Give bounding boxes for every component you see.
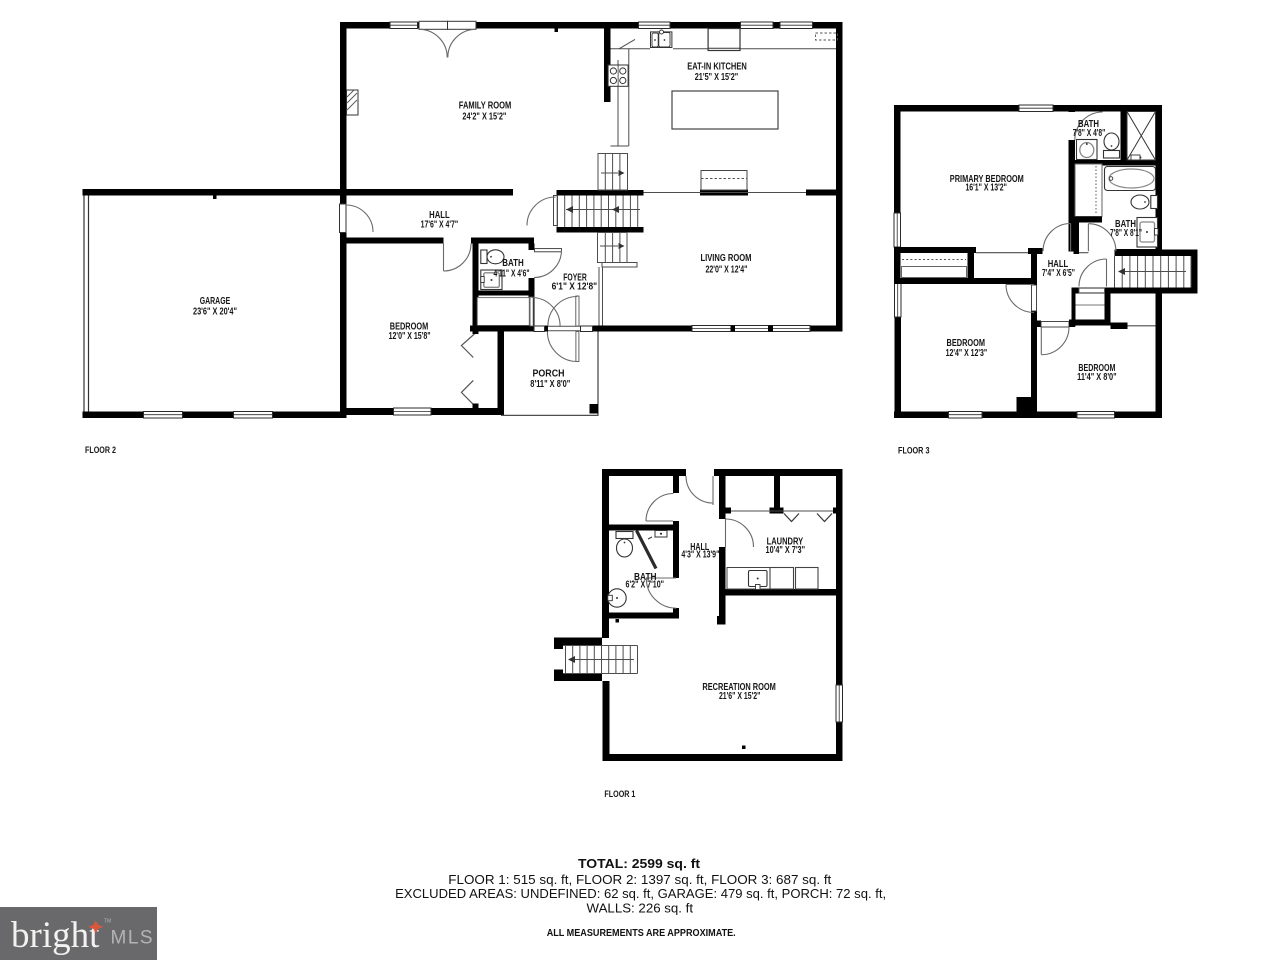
svg-text:FLOOR 1: FLOOR 1 bbox=[604, 789, 635, 800]
svg-text:24'2" X 15'2": 24'2" X 15'2" bbox=[462, 112, 506, 123]
svg-text:6'2" X 7'10": 6'2" X 7'10" bbox=[626, 580, 665, 591]
svg-text:TOTAL: 2599 sq. ft: TOTAL: 2599 sq. ft bbox=[578, 856, 701, 871]
svg-text:12'4" X 12'3": 12'4" X 12'3" bbox=[946, 348, 988, 359]
svg-text:6'1" X 12'8": 6'1" X 12'8" bbox=[552, 282, 598, 293]
svg-text:7'8" X 8'1": 7'8" X 8'1" bbox=[1110, 228, 1142, 239]
svg-text:EAT-IN KITCHEN: EAT-IN KITCHEN bbox=[687, 62, 747, 73]
svg-text:12'0" X 15'8": 12'0" X 15'8" bbox=[389, 331, 431, 342]
svg-text:17'6" X 4'7": 17'6" X 4'7" bbox=[421, 219, 459, 230]
svg-text:TM: TM bbox=[104, 919, 111, 925]
svg-text:11'4" X 8'0": 11'4" X 8'0" bbox=[1077, 372, 1117, 383]
svg-text:23'6" X 20'4": 23'6" X 20'4" bbox=[193, 307, 237, 318]
svg-text:GARAGE: GARAGE bbox=[200, 296, 231, 307]
svg-text:8'11" X 8'0": 8'11" X 8'0" bbox=[530, 379, 570, 390]
svg-text:ALL MEASUREMENTS ARE APPROXIMA: ALL MEASUREMENTS ARE APPROXIMATE. bbox=[547, 928, 736, 939]
svg-text:FLOOR 2: FLOOR 2 bbox=[85, 445, 116, 456]
svg-text:PORCH: PORCH bbox=[533, 368, 565, 379]
svg-text:7'4" X 6'5": 7'4" X 6'5" bbox=[1042, 268, 1075, 279]
svg-text:EXCLUDED AREAS: UNDEFINED: 62: EXCLUDED AREAS: UNDEFINED: 62 sq. ft, GA… bbox=[395, 886, 886, 901]
svg-text:bright: bright bbox=[11, 915, 100, 956]
svg-text:FAMILY ROOM: FAMILY ROOM bbox=[459, 101, 512, 112]
svg-text:7'8" X 4'8": 7'8" X 4'8" bbox=[1073, 128, 1106, 139]
svg-text:MLS: MLS bbox=[111, 928, 155, 949]
svg-text:10'4" X 7'3": 10'4" X 7'3" bbox=[766, 545, 806, 556]
svg-text:FLOOR 3: FLOOR 3 bbox=[898, 445, 930, 456]
svg-text:LIVING ROOM: LIVING ROOM bbox=[701, 253, 752, 264]
svg-text:BATH: BATH bbox=[502, 258, 524, 269]
svg-text:4'11" X 4'6": 4'11" X 4'6" bbox=[494, 269, 530, 280]
svg-text:21'6" X 15'2": 21'6" X 15'2" bbox=[719, 691, 761, 702]
svg-text:16'1" X 13'2": 16'1" X 13'2" bbox=[965, 182, 1007, 193]
svg-text:WALLS: 226 sq. ft: WALLS: 226 sq. ft bbox=[587, 900, 694, 915]
svg-text:FLOOR 1: 515 sq. ft, FLOOR 2:: FLOOR 1: 515 sq. ft, FLOOR 2: 1397 sq. f… bbox=[448, 872, 831, 887]
svg-text:4'3" X 13'9": 4'3" X 13'9" bbox=[681, 550, 719, 561]
svg-text:22'0" X 12'4": 22'0" X 12'4" bbox=[706, 264, 748, 275]
svg-text:21'5" X 15'2": 21'5" X 15'2" bbox=[695, 72, 739, 83]
